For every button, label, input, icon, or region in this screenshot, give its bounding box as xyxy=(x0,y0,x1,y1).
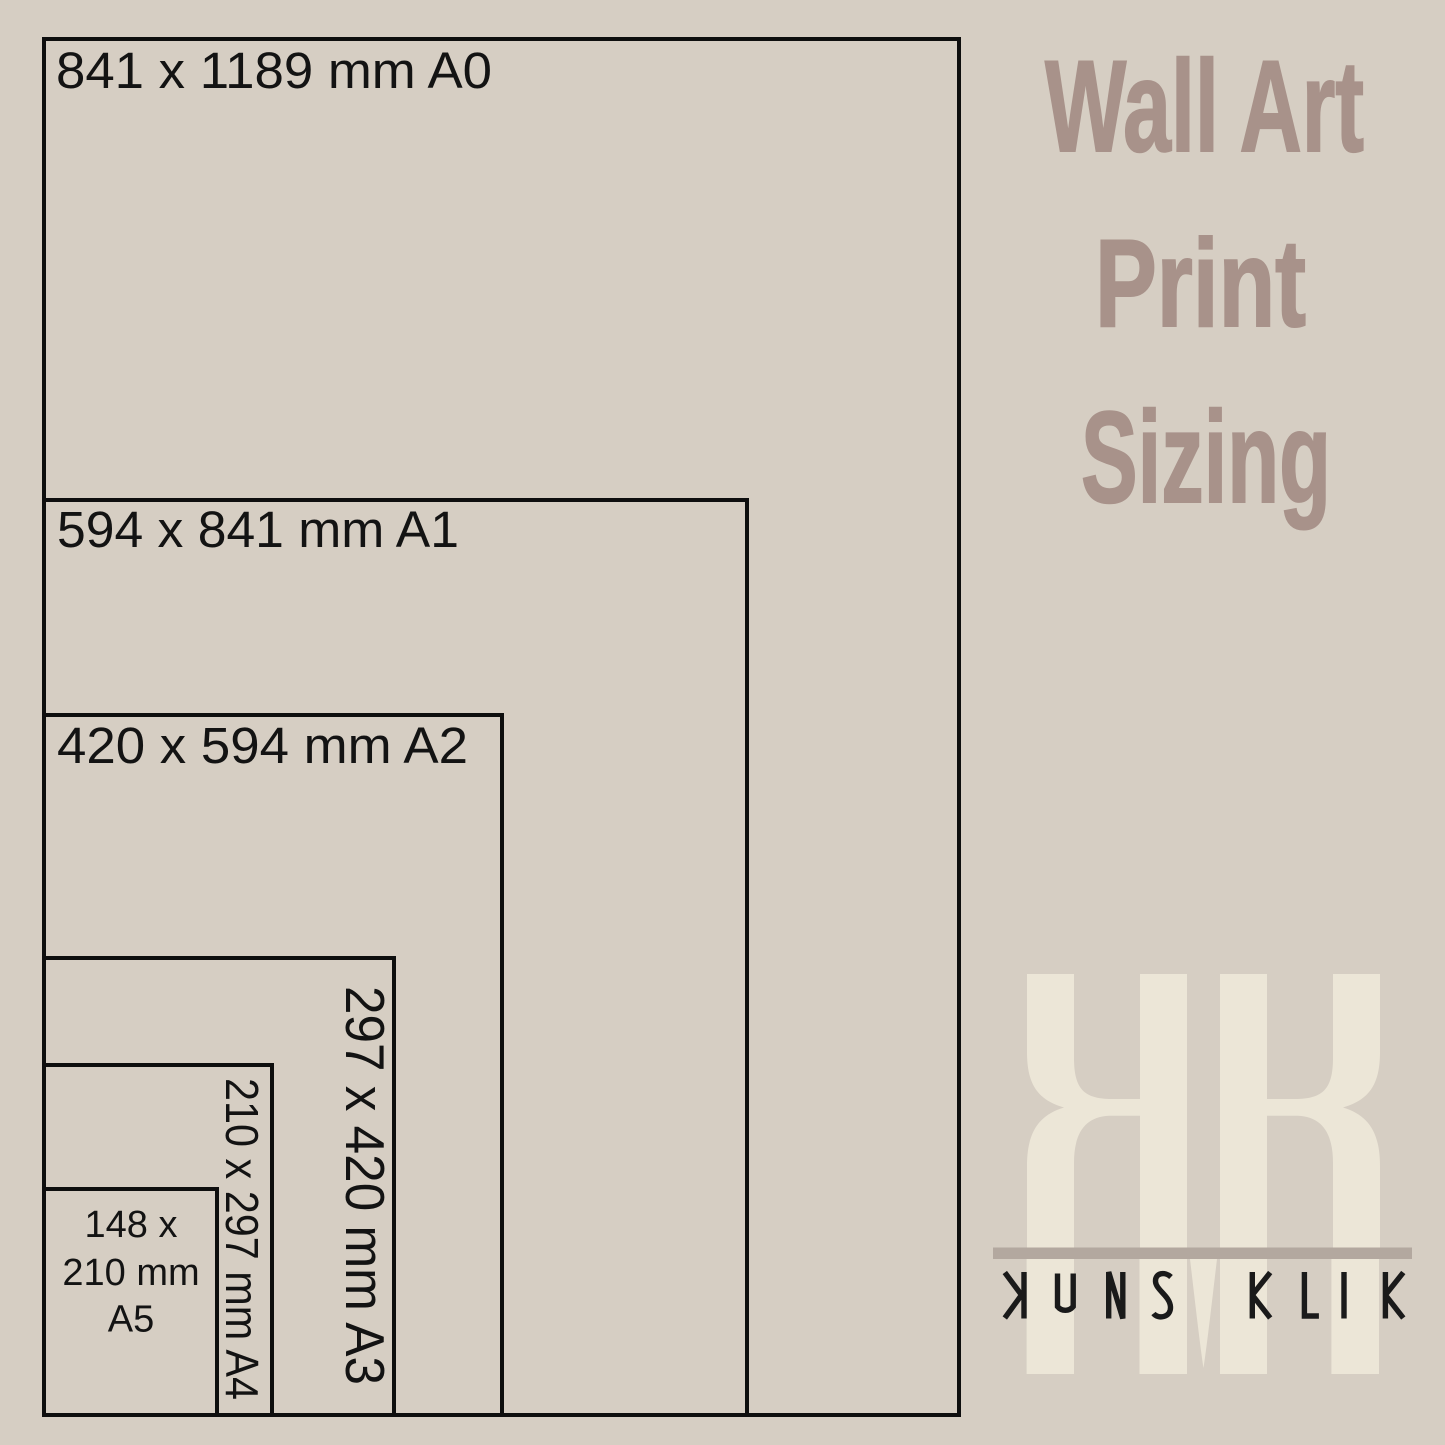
svg-text:420 x 594 mm A2: 420 x 594 mm A2 xyxy=(57,717,468,774)
svg-text:A5: A5 xyxy=(108,1299,154,1341)
svg-text:841 x 1189 mm A0: 841 x 1189 mm A0 xyxy=(56,42,492,99)
svg-text:210 mm: 210 mm xyxy=(62,1252,199,1294)
svg-text:210 x 297 mm A4: 210 x 297 mm A4 xyxy=(216,1078,268,1400)
svg-text:Wall Art: Wall Art xyxy=(1045,33,1364,179)
svg-text:Print: Print xyxy=(1095,215,1306,353)
svg-text:148 x: 148 x xyxy=(85,1204,178,1246)
svg-text:Sizing: Sizing xyxy=(1081,384,1331,530)
svg-text:297 x 420 mm A3: 297 x 420 mm A3 xyxy=(334,986,396,1385)
svg-text:594 x 841 mm A1: 594 x 841 mm A1 xyxy=(57,501,459,558)
